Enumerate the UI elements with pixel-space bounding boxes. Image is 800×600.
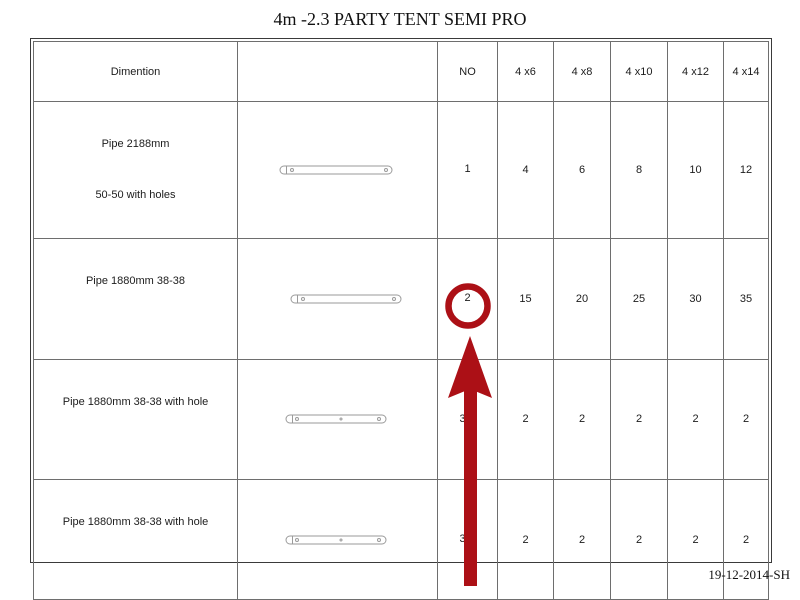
- part-no: 2: [440, 291, 495, 306]
- part-no: 3-1: [440, 412, 495, 427]
- header-dimension: Dimention: [34, 42, 238, 102]
- qty-cell: 20: [554, 239, 611, 359]
- part-no: 1: [440, 162, 495, 177]
- qty-cell: 2: [611, 480, 668, 600]
- part-name: Pipe 2188mm: [36, 136, 235, 153]
- date-code: 19-12-2014-SH: [708, 567, 790, 583]
- header-row: Dimention NO 4 x6 4 x8 4 x10 4 x12 4 x14: [34, 42, 769, 102]
- header-illustration: [238, 42, 438, 102]
- qty-cell: 30: [668, 239, 724, 359]
- header-no: NO: [438, 42, 498, 102]
- parts-table: Dimention NO 4 x6 4 x8 4 x10 4 x12 4 x14…: [30, 38, 772, 563]
- table-row: Pipe 2188mm 50-50 with holes 1 4 6 8 10: [34, 102, 769, 239]
- qty-cell: 2: [554, 359, 611, 479]
- qty-cell: 35: [724, 239, 769, 359]
- header-size-4x14: 4 x14: [724, 42, 769, 102]
- qty-cell: 2: [554, 480, 611, 600]
- header-size-4x10: 4 x10: [611, 42, 668, 102]
- qty-cell: 2: [611, 359, 668, 479]
- part-name: Pipe 1880mm 38-38: [36, 273, 235, 290]
- document-page: 4m -2.3 PARTY TENT SEMI PRO Dimention NO…: [0, 0, 800, 600]
- part-name: Pipe 1880mm 38-38 with hole: [36, 394, 235, 411]
- qty-cell: 12: [724, 102, 769, 239]
- pipe-illustration: [240, 399, 438, 439]
- part-name: Pipe 1880mm 38-38 with hole: [36, 514, 235, 531]
- qty-cell: 15: [498, 239, 554, 359]
- part-no: 3-2: [440, 532, 495, 547]
- qty-cell: 4: [498, 102, 554, 239]
- qty-cell: 2: [668, 359, 724, 479]
- header-size-4x8: 4 x8: [554, 42, 611, 102]
- header-size-4x6: 4 x6: [498, 42, 554, 102]
- qty-cell: 2: [498, 359, 554, 479]
- table-row: Pipe 1880mm 38-38 2 15 20 25 30 35: [34, 239, 769, 359]
- qty-cell: 10: [668, 102, 724, 239]
- qty-cell: 8: [611, 102, 668, 239]
- qty-cell: 25: [611, 239, 668, 359]
- pipe-illustration: [240, 150, 438, 190]
- qty-cell: 2: [498, 480, 554, 600]
- parts-table-grid: Dimention NO 4 x6 4 x8 4 x10 4 x12 4 x14…: [33, 41, 769, 600]
- qty-cell: 6: [554, 102, 611, 239]
- header-size-4x12: 4 x12: [668, 42, 724, 102]
- qty-cell: 2: [724, 359, 769, 479]
- table-row: Pipe 1880mm 38-38 with hole 3-1 2 2 2 2: [34, 359, 769, 479]
- pipe-illustration: [240, 279, 438, 319]
- part-name: 50-50 with holes: [36, 187, 235, 204]
- pipe-illustration: [240, 520, 438, 560]
- table-row: Pipe 1880mm 38-38 with hole 3-2 2 2 2 2: [34, 480, 769, 600]
- page-title: 4m -2.3 PARTY TENT SEMI PRO: [0, 9, 800, 30]
